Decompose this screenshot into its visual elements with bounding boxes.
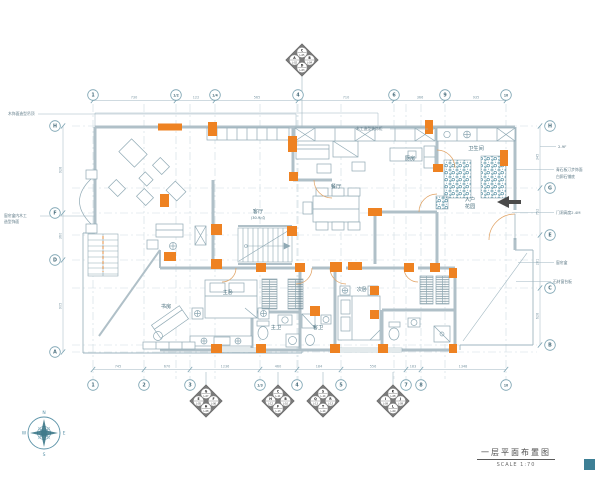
svg-text:5: 5 [339,383,342,389]
elevation-code: L-09 [383,402,389,405]
svg-text:10: 10 [504,384,508,388]
svg-text:E: E [548,233,551,239]
elevation-marker: SL-14QL-13RL-13TL-14 [307,372,340,417]
elevation-code: L-10 [283,402,289,405]
dimension-label: 905 [59,303,63,309]
svg-text:1/2: 1/2 [173,94,178,98]
elevation-code: L-08 [204,410,210,413]
dimension-label: 730 [131,96,137,100]
room-label-guest-bath: 客卫 [313,323,323,331]
annotation-floor-ref: 2-9F [558,144,566,149]
elevation-letter: E [197,397,199,401]
elevation-letter: D [301,64,304,68]
eave-lines [95,113,378,127]
dimension-label: 1236 [221,365,230,369]
room-label-living: 客厅 [253,207,263,215]
svg-text:C: C [548,286,552,292]
grid-bubble: 3 [185,380,196,391]
elevation-code: L-13 [313,402,319,405]
dimension-label: 670 [164,365,170,369]
floor-plan-canvas: 7301225657103669357456701236460184556183… [0,0,600,480]
living-sofa-group [109,139,186,206]
svg-text:G: G [548,186,552,192]
bath-counter [437,128,515,141]
grid-bubble: 5 [336,380,347,391]
dimension-label: 345 [536,154,540,160]
dimension-label: 928 [59,167,63,173]
dimension-label: 281 [536,259,540,265]
dimension-label: 628 [536,313,540,319]
dimension-label: 183 [410,365,416,369]
elevation-code: L-06 [211,402,217,405]
svg-text:1/3: 1/3 [257,384,262,388]
grid-bubble: 7 [401,380,412,391]
dimension-label: 710 [343,96,349,100]
elevation-code: L-03 [300,69,306,72]
svg-text:1: 1 [91,383,94,389]
elevation-marker: KL-08IL-09JL-09LL-09 [377,372,410,417]
annotation-sill: 石材窗台板 [553,279,572,284]
elevation-letter: S [322,390,324,394]
grid-bubble: 1/2 [171,90,182,101]
dimension-label: 752 [536,209,540,215]
grid-bubble: 1 [88,90,99,101]
compass-west-label: W [22,431,27,437]
room-label-master: 主卧 [223,288,233,296]
elevation-code: L-07 [204,395,210,398]
dimension-label: 122 [193,96,199,100]
grid-bubble: H [545,121,556,132]
ensuite-fixtures [389,318,450,342]
svg-text:B: B [548,343,552,349]
room-label-master-bath: 主卫 [271,323,281,331]
elevation-marker: CL-05AL-02BL-04DL-03 [286,44,319,127]
dimension-label: 360 [59,233,63,239]
elevation-marker: GL-07EL-05FL-06HL-08 [190,372,223,417]
grid-bubble: 10 [501,90,512,101]
svg-text:1/4: 1/4 [212,94,218,98]
annotation-cabinet: 木工造型装饰柜 [356,126,383,131]
grid-bubble: 9 [440,90,451,101]
grid-bubble: 8 [416,380,427,391]
annotation-stone-1: 青石板汀步饰面 [556,167,583,172]
legend-color-chip [584,459,595,470]
bath1-fixtures [257,315,299,347]
annotation-curtain: 窗帘盒 [556,260,568,265]
elevation-letter: G [205,390,208,394]
elevation-code: L-13 [276,410,282,413]
cabinet-desk-group [147,224,206,250]
dining-set [303,188,360,230]
elevation-code: L-05 [300,54,306,57]
svg-text:7: 7 [404,383,407,389]
elevation-letter: Q [314,397,317,401]
elevation-letter: J [399,397,401,401]
elevation-letter: I [385,397,386,401]
elevation-code: L-08 [391,395,397,398]
svg-text:1: 1 [91,93,94,99]
dimension-label: 460 [275,365,281,369]
elevation-code: L-04 [307,61,313,64]
elevation-letter: F [212,397,214,401]
grid-bubble: D [50,255,61,266]
grid-bubble: 1/4 [210,90,221,101]
study-desk [143,306,195,349]
elevation-letter: H [205,405,208,409]
room-label-kitchen: 厨房 [405,154,415,162]
grid-bubble: G [545,183,556,194]
floor-plan-sheet: 7301225657103669357456701236460184556183… [0,0,600,480]
dimension-label: 1348 [459,365,468,369]
drawing-title: 一层平面布置图 [477,447,555,460]
svg-text:2: 2 [142,383,145,389]
elevation-letter: H [269,397,272,401]
elevation-letter: F [277,405,279,409]
elevation-code: L-14 [321,395,327,398]
elevation-letter: L [392,405,394,409]
grid-bubble: B [545,340,556,351]
svg-text:A: A [53,350,57,356]
elevation-code: L-13 [328,402,334,405]
grid-bubble: A [50,347,61,358]
room-label-entry-garden: 花园 [465,202,475,210]
elevation-code: L-09 [391,410,397,413]
dimension-label: 184 [316,365,322,369]
grid-bubble: 1/3 [255,380,266,391]
dimension-label: 556 [370,365,376,369]
elevation-code: L-12 [268,402,274,405]
svg-text:D: D [53,258,57,264]
dimension-label: 366 [417,96,423,100]
grid-bubble: H [50,121,61,132]
family-sofa-group [296,141,365,173]
annotation-stone-2: 白卵石铺底 [556,174,575,179]
dimension-label: 935 [473,96,479,100]
stairs-garden [88,234,118,276]
compass-east-label: E [63,431,66,437]
room-label-living-area: (30.9㎡) [251,215,266,220]
room-label-bathroom: 卫生间 [468,144,484,152]
grid-bubble: C [545,283,556,294]
dimension-label: 745 [115,365,121,369]
grid-bubble: 2 [139,380,150,391]
room-label-bedroom2: 次卧 [357,285,367,293]
room-label-study: 书房 [161,302,171,310]
drawing-title-block: 一层平面布置图 SCALE 1:70 [452,440,580,468]
grid-bubble: 4 [293,90,304,101]
grid-bubble: F [50,208,61,219]
svg-text:F: F [53,211,56,217]
svg-text:3: 3 [188,383,191,389]
elevation-code: L-02 [292,61,298,64]
svg-text:10: 10 [504,94,508,98]
annotation-ceiling: 木饰面造型吊顶 [8,111,35,116]
grid-bubble: 4 [292,380,303,391]
stairs-main [238,228,292,262]
compass-south-label: S [43,452,46,458]
grid-bubble: 6 [389,90,400,101]
room-label-entry: 入户 [465,195,475,203]
dimension-label: 565 [254,96,260,100]
annotation-curtainbox-1: 窗帘盒内木工 [4,213,27,218]
elevation-marker: CL-11HL-12BL-10FL-13 [262,372,295,417]
elevation-code: L-14 [321,410,327,413]
elevation-code: L-05 [196,402,202,405]
annotation-curtainbox-2: 造型饰面 [4,219,19,224]
grid-bubble: E [545,230,556,241]
compass-rose: N E S W [22,410,66,458]
grid-bubble: 10 [501,380,512,391]
svg-text:H: H [548,124,552,130]
annotation-door-height: 门洞高度2.4M [556,210,581,215]
drawing-scale: SCALE 1:70 [452,462,580,468]
elevation-code: L-09 [398,402,404,405]
room-label-dining: 餐厅 [331,182,341,190]
elevation-code: L-11 [276,395,282,398]
compass-north-label: N [42,410,45,416]
svg-text:H: H [53,124,57,130]
grid-bubble: 1 [88,380,99,391]
